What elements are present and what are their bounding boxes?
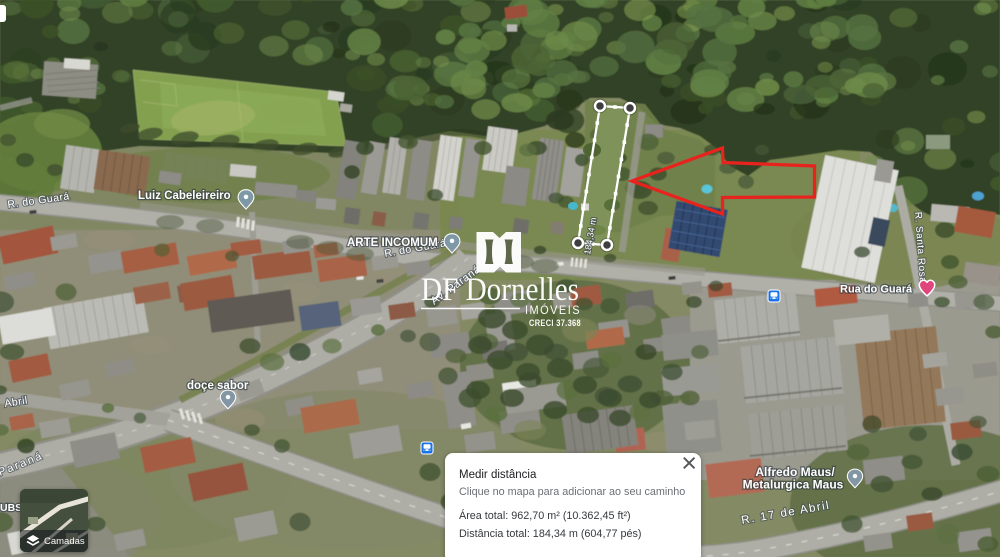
svg-text:CRECI 37.368: CRECI 37.368 [529,318,581,328]
svg-text:Metalurgica Maus: Metalurgica Maus [743,478,844,492]
svg-text:IMÓVEIS: IMÓVEIS [525,302,581,317]
svg-text:ARTE INCOMUM: ARTE INCOMUM [347,237,438,249]
svg-text:Luiz Cabeleireiro: Luiz Cabeleireiro [138,190,231,202]
svg-text:UBS: UBS [0,502,22,514]
svg-text:doçe sabor: doçe sabor [187,380,249,392]
svg-text:Rua do Guará: Rua do Guará [840,284,913,296]
